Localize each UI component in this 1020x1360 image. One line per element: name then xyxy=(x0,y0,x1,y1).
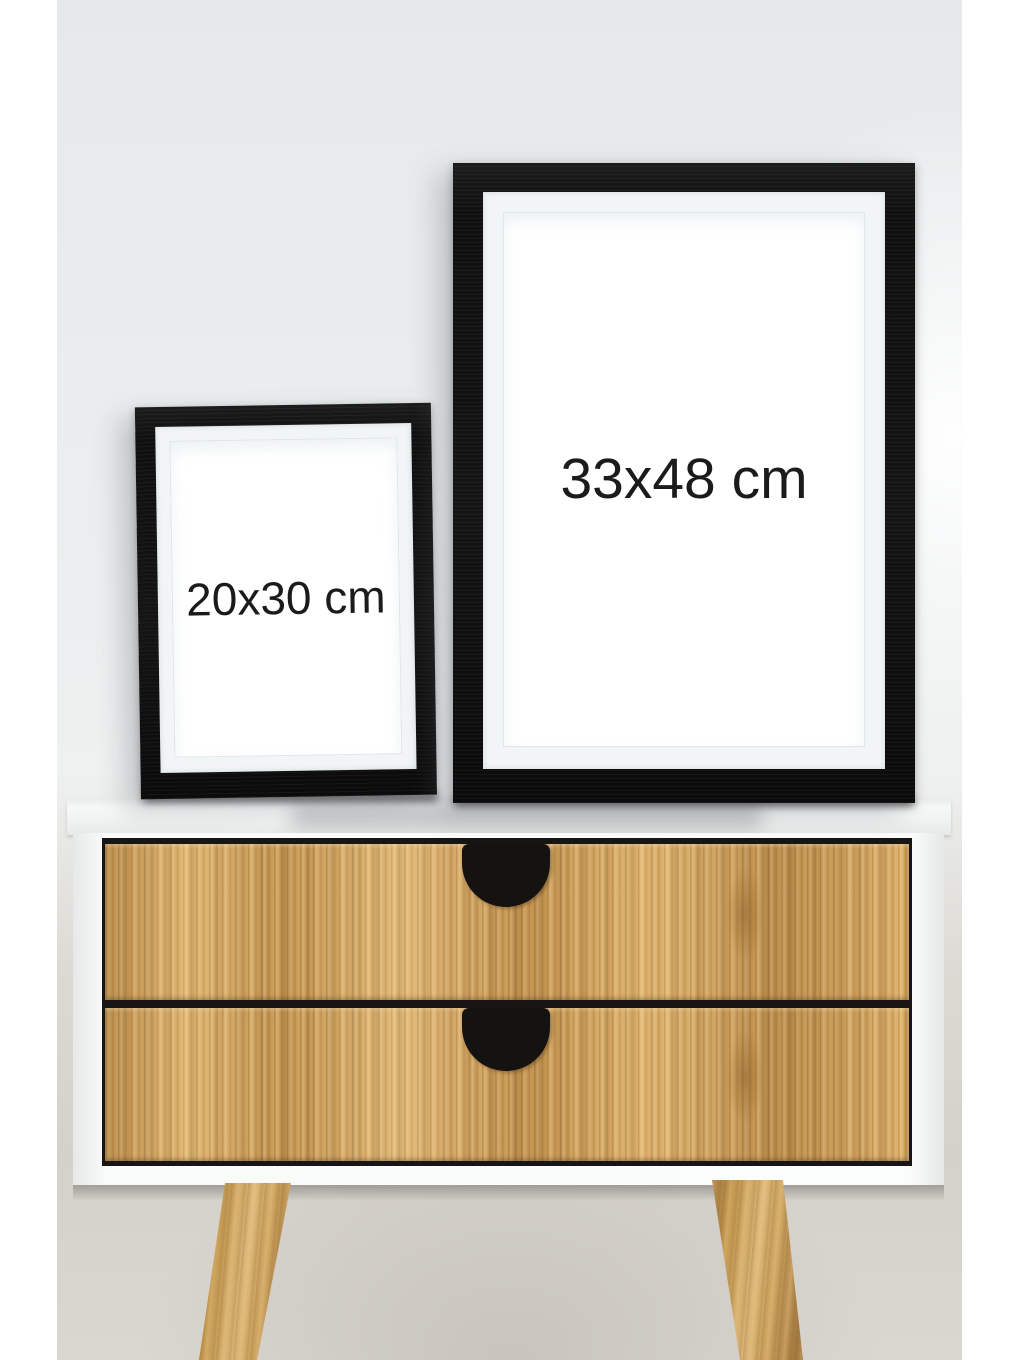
frame-small-poster: 20x30 cm xyxy=(169,437,402,758)
frame-large-mat: 33x48 cm xyxy=(483,192,885,769)
photo-area: 20x30 cm 33x48 cm xyxy=(57,0,962,1360)
frame-large: 33x48 cm xyxy=(453,163,915,803)
frame-large-size-label: 33x48 cm xyxy=(560,451,807,508)
frame-small-size-label: 20x30 cm xyxy=(186,573,386,622)
frame-large-poster: 33x48 cm xyxy=(503,212,865,747)
frame-reflection xyxy=(292,803,762,829)
frame-small-mat: 20x30 cm xyxy=(155,423,416,773)
product-photo: 20x30 cm 33x48 cm xyxy=(0,0,1020,1360)
frame-small: 20x30 cm xyxy=(135,403,437,800)
sideboard-shadow xyxy=(73,1185,944,1201)
